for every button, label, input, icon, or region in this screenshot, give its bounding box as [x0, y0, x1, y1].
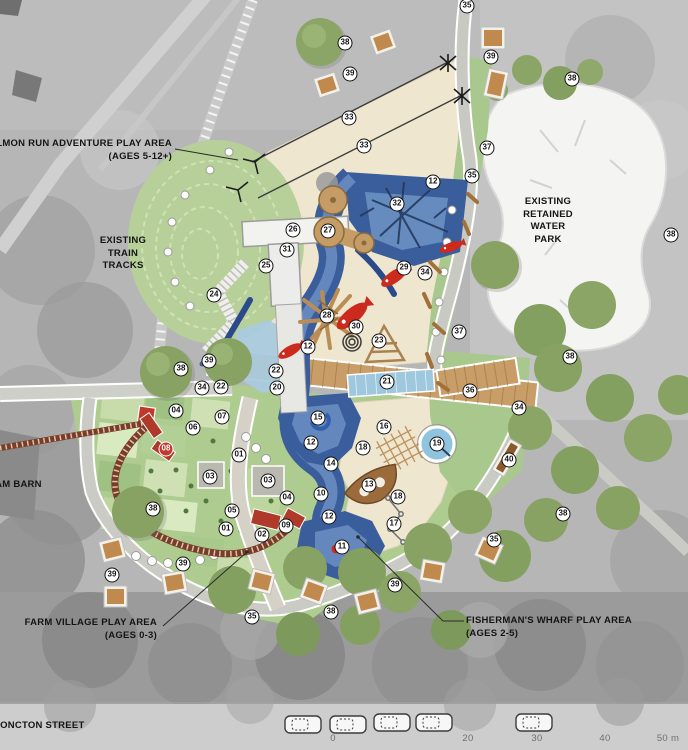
scale-tick: 40 — [599, 733, 610, 744]
label-line: PARK — [490, 234, 606, 247]
label-line: TRACKS — [77, 260, 169, 273]
site-plan: 3538393938333337351232262731252429342830… — [0, 0, 688, 750]
label-line: TRAIN — [77, 248, 169, 261]
label-existing-retained-water-park: EXISTING RETAINED WATER PARK — [490, 196, 606, 246]
label-line: EXISTING — [490, 196, 606, 209]
scale-tick: 50 m — [657, 733, 679, 744]
label-line: FARM VILLAGE PLAY AREA — [25, 617, 157, 630]
label-fishermans-wharf-play-area: FISHERMAN'S WHARF PLAY AREA (AGES 2-5) — [466, 615, 632, 640]
label-line: (AGES 5-12+) — [0, 151, 172, 164]
scale-tick: 20 — [462, 733, 473, 744]
label-line: SALMON RUN ADVENTURE PLAY AREA — [0, 138, 172, 151]
label-tram-barn: TRAM BARN — [0, 479, 42, 492]
label-line: EXISTING — [77, 235, 169, 248]
scale-tick: 0 — [330, 733, 336, 744]
label-line: (AGES 0-3) — [25, 630, 157, 643]
label-line: TRAM BARN — [0, 479, 42, 492]
label-existing-train-tracks: EXISTING TRAIN TRACKS — [77, 235, 169, 273]
label-farm-village-play-area: FARM VILLAGE PLAY AREA (AGES 0-3) — [25, 617, 157, 642]
label-line: (AGES 2-5) — [466, 628, 632, 641]
label-line: MONCTON STREET — [0, 720, 85, 733]
label-moncton-street: MONCTON STREET — [0, 720, 85, 733]
label-line: FISHERMAN'S WHARF PLAY AREA — [466, 615, 632, 628]
label-line: WATER — [490, 221, 606, 234]
label-salmon-run-play-area: SALMON RUN ADVENTURE PLAY AREA (AGES 5-1… — [0, 138, 172, 163]
scale-tick: 30 — [531, 733, 542, 744]
label-line: RETAINED — [490, 209, 606, 222]
